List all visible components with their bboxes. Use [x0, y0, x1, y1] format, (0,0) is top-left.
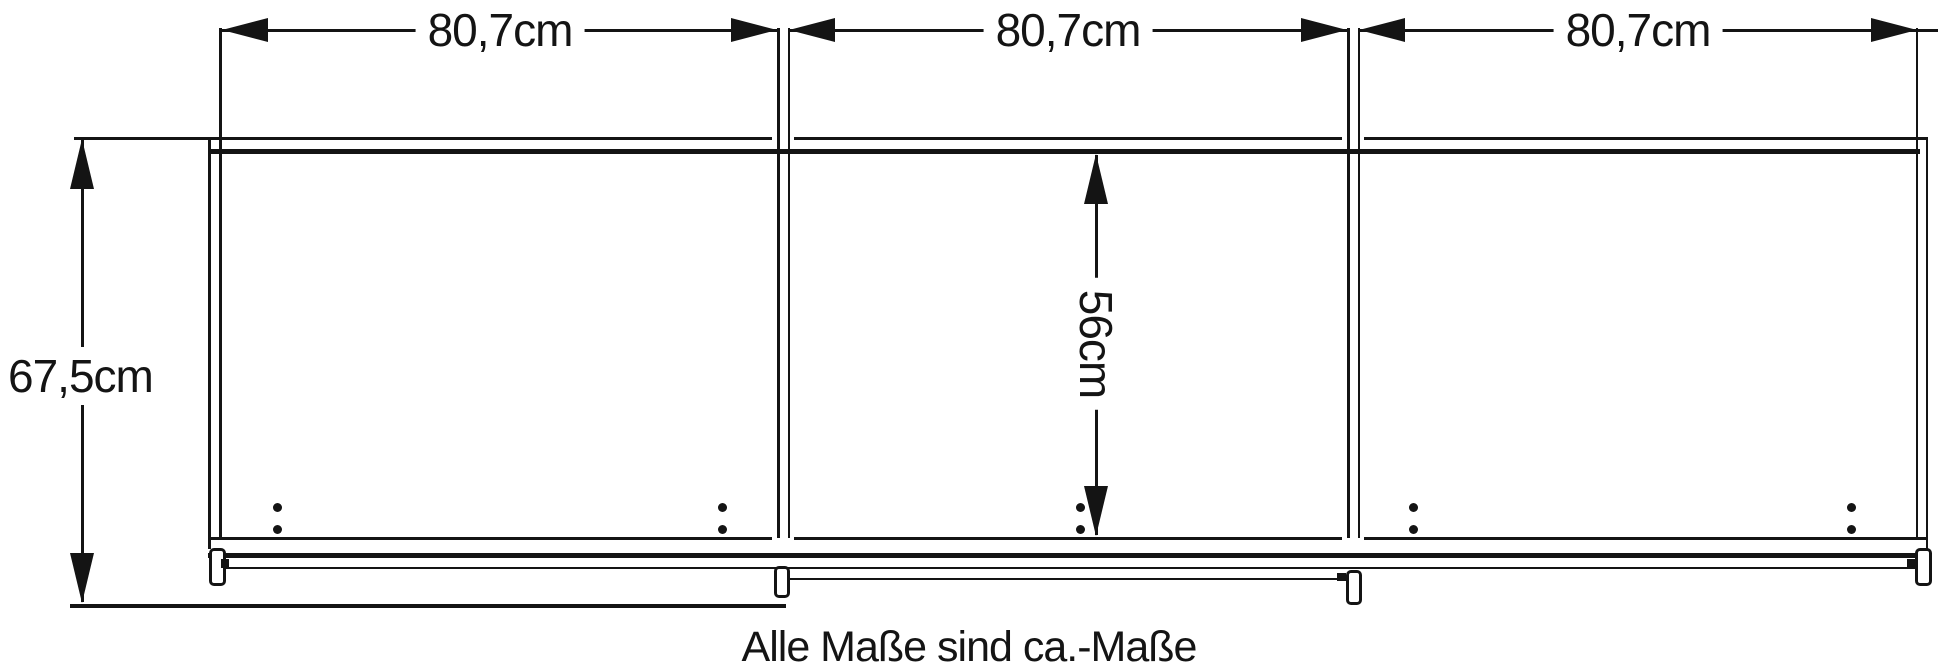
foot-glider — [774, 566, 790, 598]
cabinet-top-panel — [208, 149, 1920, 154]
cabinet-right-inner-edge — [1916, 28, 1919, 540]
foot-glider — [1915, 548, 1932, 586]
fitting-dot — [718, 503, 727, 512]
door-divider-1 — [788, 28, 791, 538]
door-divider-2 — [1347, 28, 1350, 538]
arrow-up-icon — [70, 139, 94, 189]
divider-gap — [1342, 537, 1364, 542]
cabinet-left-outer-edge — [208, 137, 211, 549]
fitting-dot — [1409, 503, 1418, 512]
fitting-dot — [1076, 525, 1085, 534]
foot-tab — [221, 559, 229, 568]
arrow-left-icon — [222, 18, 268, 42]
arrow-down-icon — [70, 553, 94, 603]
back-track-rail — [782, 578, 1352, 581]
fitting-dot — [1076, 503, 1085, 512]
dimension-drawing: 80,7cm 80,7cm 80,7cm 67,5cm 56cm Alle Ma… — [0, 0, 1938, 669]
fitting-dot — [1847, 525, 1856, 534]
height-dimension-label: 67,5cm — [4, 347, 157, 405]
fitting-dot — [273, 503, 282, 512]
fitting-dot — [1847, 503, 1856, 512]
arrow-down-icon — [1084, 486, 1108, 536]
door-divider-1 — [777, 28, 780, 538]
arrow-right-icon — [1871, 18, 1917, 42]
caption: Alle Maße sind ca.-Maße — [0, 626, 1938, 669]
divider-gap — [1342, 137, 1364, 141]
divider-gap — [772, 137, 794, 141]
height-dim-tick-top — [74, 137, 208, 140]
left-track-floor — [70, 604, 786, 608]
fitting-dot — [1409, 525, 1418, 534]
arrow-up-icon — [1084, 154, 1108, 204]
cabinet-right-outer-edge — [1926, 137, 1929, 549]
cabinet-top-edge — [208, 137, 1928, 140]
fitting-dot — [718, 525, 727, 534]
width-dimension-label-2: 80,7cm — [984, 7, 1153, 53]
arrow-right-icon — [1301, 18, 1347, 42]
cabinet-left-inner-edge — [219, 28, 222, 540]
front-track-rail — [219, 567, 1917, 570]
divider-gap — [772, 537, 794, 542]
arrow-left-icon — [1359, 18, 1405, 42]
cabinet-bottom-panel — [208, 553, 1928, 558]
arrow-right-icon — [731, 18, 777, 42]
foot-glider — [1346, 570, 1362, 605]
cabinet-inner-bottom — [208, 537, 1928, 540]
arrow-left-icon — [789, 18, 835, 42]
fitting-dot — [273, 525, 282, 534]
width-dimension-label-3: 80,7cm — [1554, 7, 1723, 53]
foot-tab — [1907, 559, 1915, 568]
width-dimension-label-1: 80,7cm — [416, 7, 585, 53]
foot-tab — [1337, 573, 1346, 581]
door-divider-2 — [1358, 28, 1361, 538]
inner-height-dimension-label: 56cm — [1071, 278, 1121, 410]
